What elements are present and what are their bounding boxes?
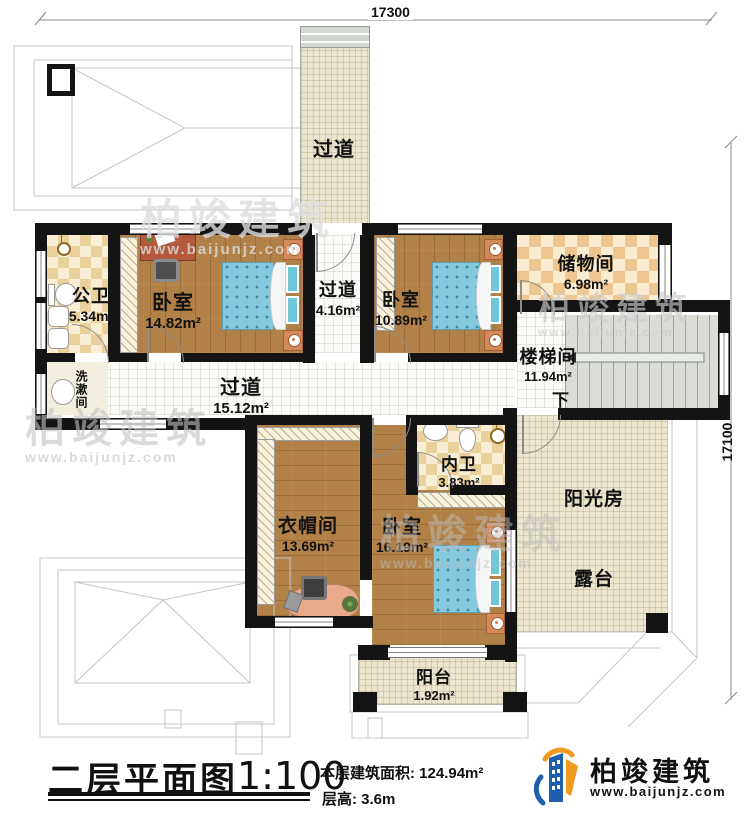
room-label-bedroom2: 卧室 10.89m²	[375, 286, 427, 328]
wall-row-a	[108, 353, 148, 362]
cloakroom-monitor	[301, 576, 327, 600]
wall-bed3-pier-left	[358, 645, 390, 660]
wall-bedroom2-left	[360, 233, 374, 363]
terrace-column	[646, 613, 668, 633]
room-label-cloakroom: 衣帽间 13.69m²	[278, 511, 338, 554]
bedroom2-pillow-1	[489, 265, 501, 293]
bedroom3-pillow-2	[489, 579, 501, 607]
wall-bed3-pier-right	[485, 645, 517, 660]
wall-bedroom2-right	[503, 223, 517, 362]
window-bedroom3-right	[506, 530, 516, 612]
door-leaf-corridor-top	[316, 233, 318, 271]
bedroom1-nightstand-2	[283, 330, 303, 351]
window-top-1	[130, 224, 200, 234]
door-leaf-sunroom	[522, 415, 524, 453]
shower-icon	[490, 428, 506, 444]
bedroom1-plant	[146, 236, 152, 242]
window-left-2	[36, 303, 46, 349]
wall-stair-bottom	[558, 408, 730, 420]
floor-height-label: 层高: 3.6m	[322, 788, 395, 809]
room-label-storage: 储物间 6.98m²	[558, 250, 615, 292]
wall-washroom-divider	[47, 353, 75, 362]
room-label-neiwei: 内卫 3.83m²	[438, 450, 479, 490]
bedroom1-bed	[222, 262, 274, 330]
window-top-2	[398, 224, 482, 234]
door-leaf-storage	[520, 280, 522, 314]
room-label-stairwell: 楼梯间 11.94m²	[520, 343, 577, 384]
cloakroom-closet-left	[257, 439, 275, 605]
dimension-top: 17300	[368, 4, 413, 20]
title-underline-2	[48, 799, 310, 801]
bedroom1-duvet	[270, 262, 286, 330]
lamp-icon	[491, 617, 504, 630]
bedroom2-nightstand-2	[484, 330, 503, 351]
wall-row-c	[360, 353, 374, 362]
bedroom1-closet	[120, 237, 138, 353]
bedroom1-nightstand-1	[283, 239, 303, 260]
window-left-3	[36, 374, 46, 414]
bedroom2-nightstand-1	[484, 239, 503, 260]
lamp-icon	[288, 243, 301, 256]
logo-url: www.baijunjz.com	[590, 784, 726, 799]
window-stair-right	[719, 333, 729, 395]
logo-icon	[533, 746, 587, 806]
room-label-bedroom3: 卧室 16.19m²	[376, 512, 428, 555]
room-label-gongwei: 公卫 5.34m²	[69, 282, 113, 324]
wall-row-b	[181, 353, 311, 362]
toilet-tank	[48, 284, 55, 306]
bedroom3-bed	[433, 545, 479, 613]
window-storage-right	[659, 245, 671, 299]
wall-neiwei-left	[406, 425, 417, 489]
room-label-bedroom1: 卧室 14.82m²	[145, 286, 201, 332]
bedroom3-nightstand-2	[486, 613, 505, 634]
wall-bedroom1-right	[303, 233, 315, 363]
floor-plan-canvas: 过道 公卫 5.34m² 卧室 14.82m² 过道 4.16m² 卧室 10.…	[0, 0, 750, 816]
dimension-right: 17100	[719, 413, 735, 471]
balcony-column-left	[353, 692, 377, 712]
room-label-balcony: 阳台 1.92m²	[413, 663, 454, 703]
floor-area-label: 本层建筑面积: 124.94m²	[320, 762, 483, 783]
room-label-terrace: 露台	[574, 564, 614, 591]
wall-row-d	[408, 353, 515, 362]
bedroom3-nightstand-1	[486, 522, 505, 543]
bedroom2-pillow-2	[489, 296, 501, 324]
bedroom2-bed	[432, 262, 480, 330]
room-label-sunroom: 阳光房	[564, 484, 624, 511]
lamp-icon	[288, 334, 301, 347]
lamp-icon	[491, 526, 504, 539]
window-bottom-left	[100, 419, 166, 429]
sink-icon	[48, 306, 69, 327]
stair-down-label: 下	[552, 386, 570, 411]
roof-chimney	[47, 64, 75, 96]
lamp-icon	[489, 334, 502, 347]
room-label-corridor-main: 过道 15.12m²	[213, 371, 269, 417]
door-leaf-bedroom2	[374, 326, 376, 362]
room-label-washroom: 洗漱间	[73, 370, 90, 409]
bedroom3-duvet	[475, 545, 490, 613]
door-leaf-bedroom3	[372, 418, 374, 456]
sink-icon	[48, 328, 69, 349]
bedroom1-pillow-2	[286, 296, 299, 324]
bedroom1-pillow-1	[286, 265, 299, 293]
balcony-column-right	[503, 692, 527, 712]
bedroom3-pillow-1	[489, 548, 501, 576]
lamp-icon	[489, 243, 502, 256]
room-label-corridor-mid: 过道 4.16m²	[316, 276, 360, 318]
wall-neiwei-top	[406, 415, 517, 425]
bedroom1-chair	[153, 259, 179, 282]
ceiling-lamp-icon	[57, 242, 71, 256]
wall-cloak-bed3	[360, 415, 372, 580]
window-cloak-bottom	[275, 617, 333, 627]
lamp-cord	[61, 234, 62, 243]
cloakroom-plant	[342, 596, 358, 612]
washbasin-icon	[51, 379, 75, 405]
wall-wing-left	[245, 415, 257, 628]
room-label-corridor-top: 过道	[313, 133, 355, 162]
window-left-1	[36, 251, 46, 297]
door-leaf-neiwei	[417, 452, 419, 487]
balcony-slider-door	[388, 647, 487, 658]
